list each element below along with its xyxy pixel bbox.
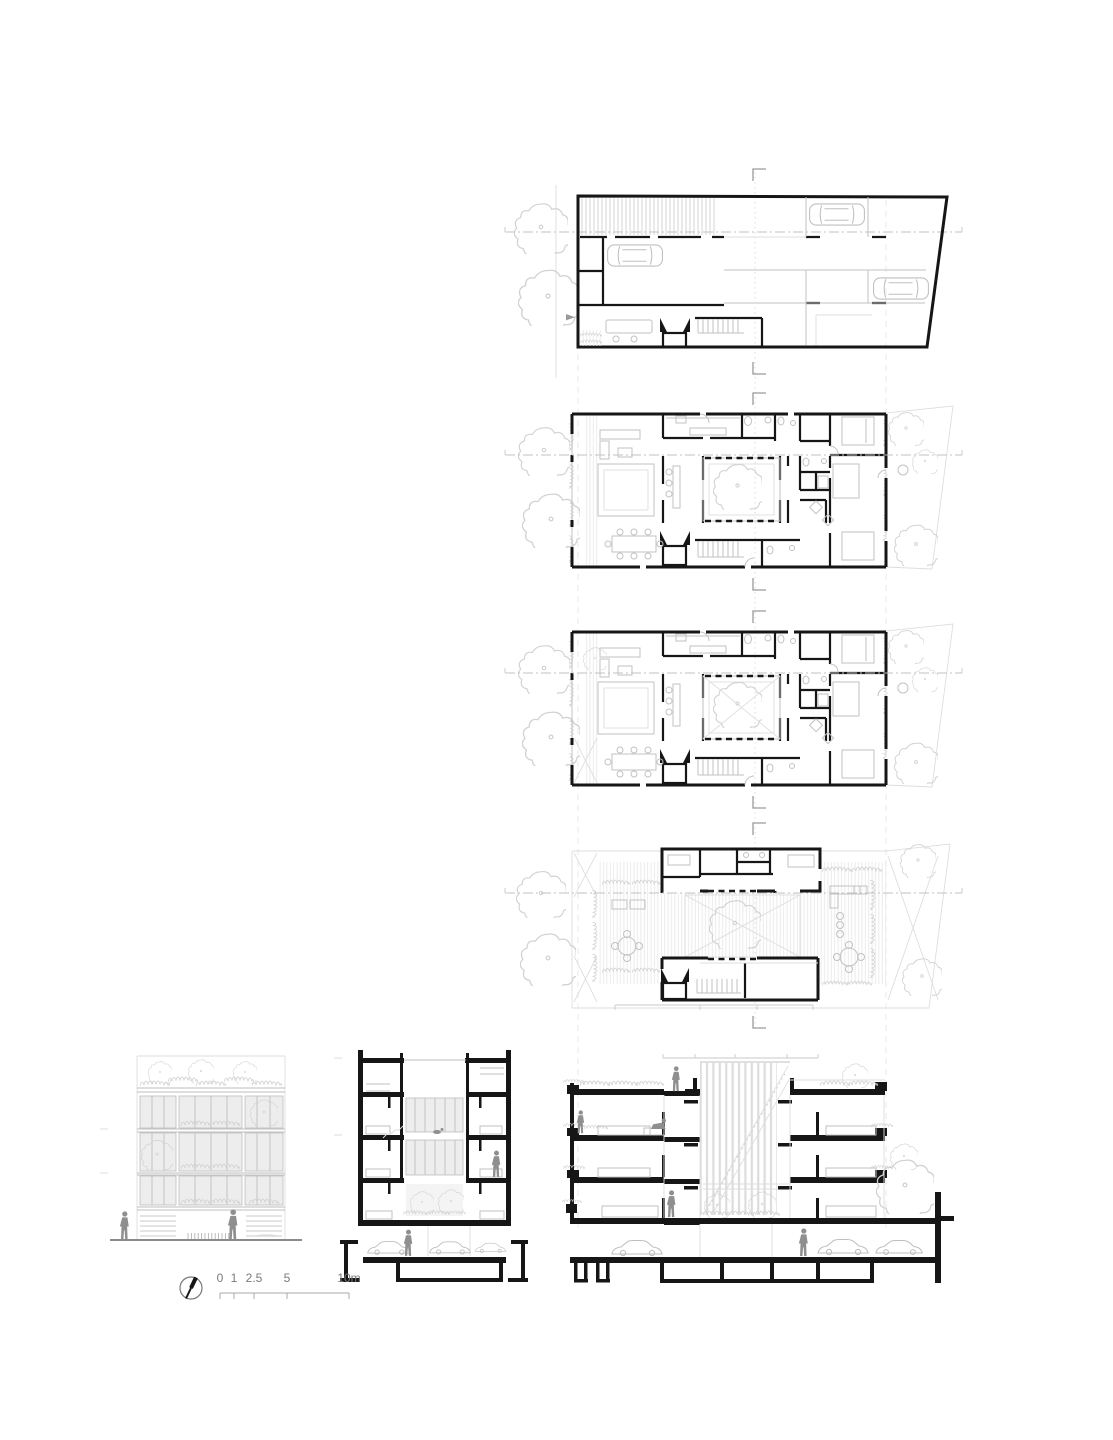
person-figure xyxy=(228,1209,238,1239)
roof-core-bottom xyxy=(661,958,818,1000)
scale-label-2.5: 2.5 xyxy=(246,1271,263,1285)
car-icon xyxy=(368,1242,411,1255)
stair-core xyxy=(660,531,744,565)
basement-garage xyxy=(612,1224,922,1257)
basement-core xyxy=(660,318,762,347)
car-icon xyxy=(475,1243,506,1252)
longitudinal-section xyxy=(562,1054,954,1283)
roof-core-top xyxy=(662,849,820,893)
basement-walls xyxy=(578,237,886,305)
entry-arrow-icon xyxy=(566,314,575,320)
street-tree-icon xyxy=(514,204,582,332)
roof-garden-planting xyxy=(140,1060,282,1087)
glazed-facade-grid xyxy=(140,1096,283,1205)
car-icon xyxy=(818,1240,868,1255)
car-icon xyxy=(430,1242,471,1254)
basement-floor-plan xyxy=(505,169,962,378)
scale-label-10m: 10m xyxy=(337,1271,360,1285)
front-planting-strip xyxy=(569,414,598,567)
north-arrow-icon xyxy=(180,1277,202,1299)
upper-floor-plan xyxy=(505,611,962,808)
foundation xyxy=(340,1240,528,1282)
courtyard-tree-icon xyxy=(713,464,765,514)
street-tree-icon xyxy=(518,428,584,554)
person-figure xyxy=(672,1066,680,1091)
scale-bar-ticks xyxy=(220,1293,349,1299)
car-icon xyxy=(608,245,663,266)
parking-bay-lines xyxy=(724,197,926,345)
scale-label-1: 1 xyxy=(231,1271,238,1285)
roof-terrace-plan xyxy=(505,823,962,1028)
person-figure xyxy=(120,1211,129,1239)
car-icon xyxy=(612,1241,662,1256)
person-figure xyxy=(492,1151,500,1177)
scale-label-5: 5 xyxy=(284,1271,291,1285)
garden-tree-icon xyxy=(876,1160,938,1219)
scale-bar: 0 1 2.5 5 10m xyxy=(217,1271,361,1299)
car-icon xyxy=(876,1241,922,1255)
street-elevation xyxy=(100,1056,302,1240)
skylight-projection xyxy=(663,1054,818,1058)
scale-label-0: 0 xyxy=(217,1271,224,1285)
cross-section xyxy=(334,1050,528,1282)
ground-floor-elevation xyxy=(140,1216,282,1239)
interior-walls xyxy=(663,414,886,567)
courtyard-glazing xyxy=(403,1098,466,1216)
person-figure xyxy=(799,1228,808,1256)
entry-ramp xyxy=(580,198,717,235)
architectural-drawing-sheet: 0 1 2.5 5 10m xyxy=(0,0,1113,1440)
person-figure xyxy=(404,1230,412,1256)
person-figure xyxy=(667,1190,676,1217)
foundation xyxy=(570,1257,935,1283)
dimension-string xyxy=(615,1005,813,1010)
car-icon xyxy=(874,278,929,299)
ground-floor-plan xyxy=(505,393,962,590)
drawing-sheet-svg: 0 1 2.5 5 10m xyxy=(0,0,1113,1440)
rear-garden xyxy=(883,406,953,570)
courtyard-void-x xyxy=(703,676,780,739)
car-icon xyxy=(810,204,865,225)
courtyard xyxy=(703,458,780,521)
basement-garage xyxy=(368,1226,506,1256)
